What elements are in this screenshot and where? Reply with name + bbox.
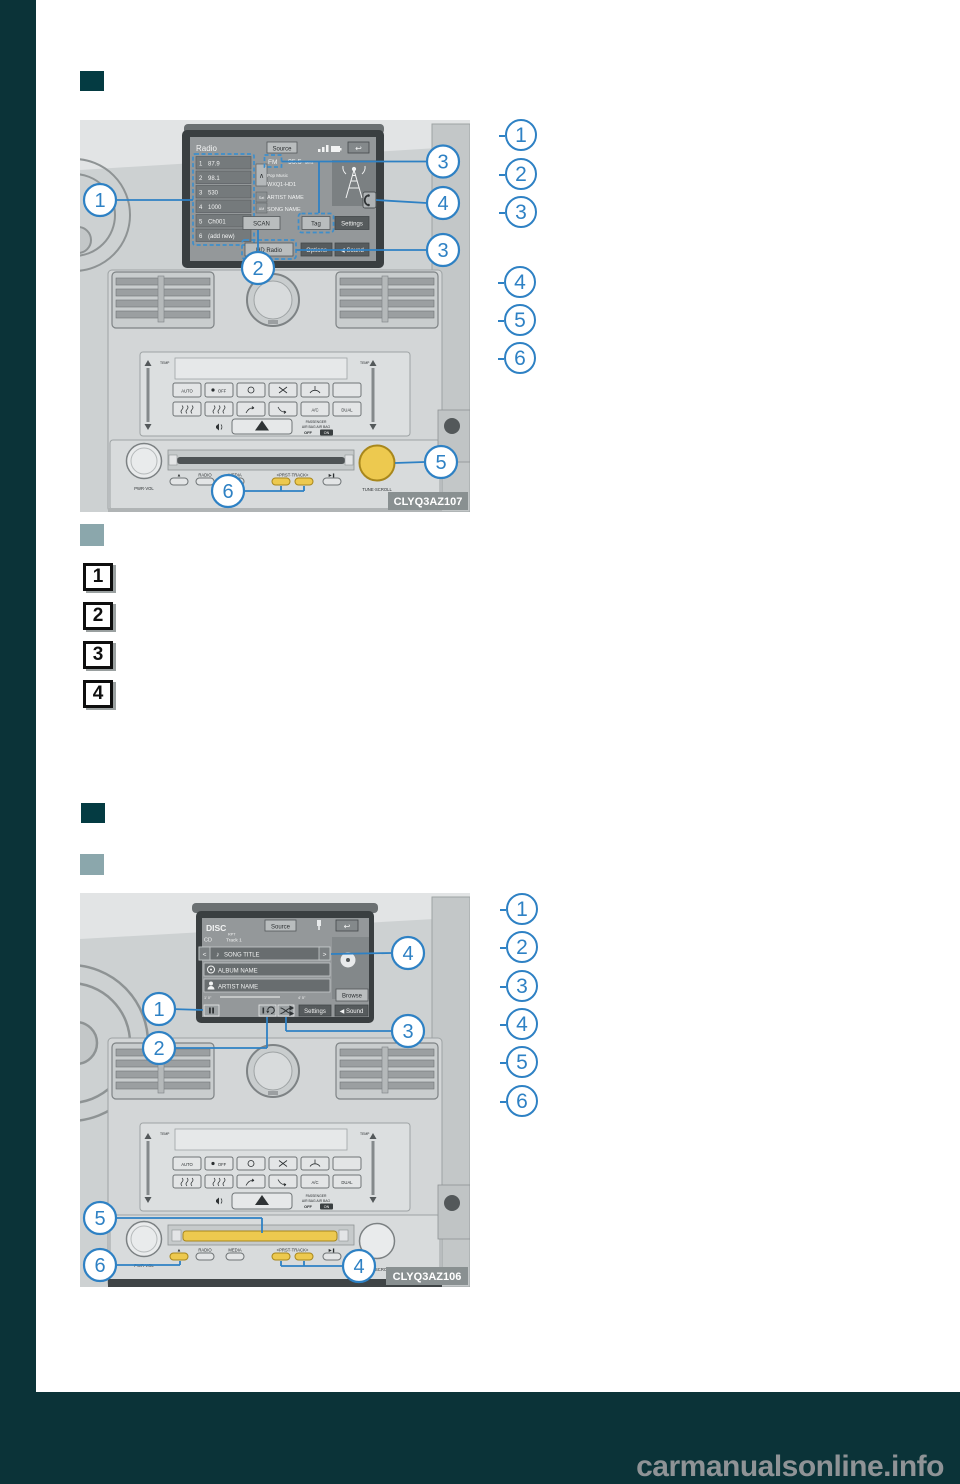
- cd-slot-highlighted: [168, 1225, 354, 1245]
- svg-text:2: 2: [153, 1038, 164, 1060]
- legend-number: 4: [516, 1014, 528, 1035]
- side-knob: [438, 1185, 470, 1239]
- time-elapsed: 1' 0": [204, 996, 212, 1000]
- power-volume-knob: [127, 444, 162, 479]
- step-number-box-3: 3: [83, 641, 113, 669]
- callout-4a: 4: [392, 937, 424, 969]
- legend-number: 3: [516, 976, 528, 997]
- settings-label: Settings: [304, 1009, 326, 1015]
- callout-6: 6: [212, 475, 244, 507]
- dual-button-label: DUAL: [341, 408, 353, 413]
- svg-text:OFF: OFF: [304, 430, 313, 435]
- media-button: [226, 1253, 244, 1260]
- watermark-text: carmanualsonline.info: [636, 1450, 944, 1484]
- eject-symbol: ▲: [177, 473, 181, 478]
- scroll-up-icon: ∧: [259, 173, 264, 180]
- dual-button-label: DUAL: [341, 1180, 353, 1185]
- right-air-vent: [336, 272, 438, 328]
- legend-number: 3: [515, 202, 527, 223]
- section-marker-1: [80, 71, 104, 91]
- callout-4: 4: [427, 187, 459, 219]
- legend-number: 6: [516, 1091, 528, 1112]
- legend-item-1: 1: [505, 119, 537, 151]
- eject-symbol: ▲: [177, 1248, 181, 1253]
- svg-text:OFF: OFF: [304, 1204, 313, 1209]
- svg-text:TEMP: TEMP: [160, 361, 170, 365]
- svg-text:3: 3: [402, 1021, 413, 1043]
- callout-1: 1: [143, 993, 175, 1025]
- legend-item-5: 5: [504, 304, 536, 336]
- legend-item-3: 3: [506, 970, 538, 1002]
- callout-3b: 3: [427, 234, 459, 266]
- play-button: [323, 1253, 341, 1260]
- center-dial: [247, 1045, 299, 1097]
- preset-value: 530: [208, 191, 219, 197]
- svg-text:AIR BAG AIR BAG: AIR BAG AIR BAG: [302, 1199, 331, 1203]
- climate-display: [175, 358, 347, 379]
- legend-item-4: 4: [506, 1008, 538, 1040]
- legend-item-2: 2: [506, 931, 538, 963]
- radio-button: [196, 478, 214, 485]
- callout-3: 3: [392, 1015, 424, 1047]
- page-background: Radio Source ↩ 1 87.9 2 98.1 3 530 4 100…: [0, 0, 960, 1484]
- svg-text:ON: ON: [324, 1205, 330, 1209]
- browse-label: Browse: [342, 994, 363, 1000]
- repeat-button: [259, 1005, 276, 1016]
- step-number: 2: [93, 605, 104, 627]
- svg-text:4: 4: [353, 1256, 364, 1278]
- eject-button-highlighted: [170, 1253, 188, 1260]
- legend-number: 1: [516, 899, 528, 920]
- pause-button: [204, 1005, 219, 1016]
- off-button-label: OFF: [218, 1162, 227, 1167]
- power-volume-label: PWR·VOL: [134, 486, 154, 491]
- play-pause-label: ▶❚: [329, 473, 336, 478]
- legend-number: 4: [514, 272, 526, 293]
- options-label: Options: [306, 248, 327, 254]
- preset-value: Ch001: [208, 220, 226, 226]
- legend-number: 5: [514, 310, 526, 331]
- legend-item-6: 6: [506, 1085, 538, 1117]
- section-marker-4: [80, 854, 104, 875]
- svg-text:TEMP: TEMP: [360, 1132, 370, 1136]
- svg-text:2: 2: [252, 258, 263, 280]
- left-air-vent: [112, 272, 214, 328]
- right-air-vent: [336, 1043, 438, 1099]
- step-number: 1: [93, 566, 104, 588]
- legend-item-6: 6: [504, 342, 536, 374]
- svg-text:PASSENGER: PASSENGER: [306, 420, 327, 424]
- svg-text:PASSENGER: PASSENGER: [306, 1194, 327, 1198]
- auto-button-label: AUTO: [181, 389, 193, 394]
- tag-label: Tag: [311, 222, 321, 228]
- prst-track-back-button: [272, 478, 290, 485]
- section-marker-2: [80, 524, 104, 546]
- section-marker-3: [81, 803, 105, 823]
- play-button: [323, 478, 341, 485]
- step-number: 3: [93, 644, 104, 666]
- step-number-box-1: 1: [83, 563, 113, 591]
- svg-text:1: 1: [153, 999, 164, 1021]
- svg-text:5: 5: [435, 452, 446, 474]
- step-number-box-2: 2: [83, 602, 113, 630]
- callout-1: 1: [84, 184, 116, 216]
- step-number-box-4: 4: [83, 680, 113, 708]
- artist-name: ARTIST NAME: [218, 985, 258, 991]
- screen-title: DISC: [206, 923, 226, 933]
- preset-value: 98.1: [208, 176, 220, 182]
- media-button-label: MEDIA: [228, 1248, 241, 1253]
- figure-code: CLYQ3AZ107: [394, 496, 463, 508]
- tune-scroll-label: TUNE·SCROLL: [362, 487, 392, 492]
- radio-button-label: RADIO: [198, 1248, 212, 1253]
- prst-track-label: <PRST·TRACK>: [277, 473, 309, 478]
- svg-text:5: 5: [94, 1208, 105, 1230]
- off-button-label: OFF: [218, 389, 227, 394]
- disc-type-label: CD: [204, 938, 212, 944]
- sound-label: ◀ Sound: [340, 248, 364, 254]
- radio-button-label: RADIO: [198, 473, 212, 478]
- prst-track-back-button: [272, 1253, 290, 1260]
- svg-text:4: 4: [437, 193, 448, 215]
- scan-label: SCAN: [253, 222, 270, 228]
- figure-code: CLYQ3AZ106: [393, 1271, 462, 1283]
- legend-item-3: 3: [505, 196, 537, 228]
- legend-item-4: 4: [504, 266, 536, 298]
- climate-display: [175, 1129, 347, 1150]
- preset-value: 1000: [208, 205, 222, 211]
- svg-text:ON: ON: [324, 431, 330, 435]
- legend-item-1: 1: [506, 893, 538, 925]
- artist-name: ARTIST NAME: [267, 195, 304, 201]
- legend-number: 2: [515, 164, 527, 185]
- album-name: ALBUM NAME: [218, 969, 258, 975]
- figure-radio-operation: Radio Source ↩ 1 87.9 2 98.1 3 530 4 100…: [80, 120, 470, 512]
- song-title: SONG TITLE: [224, 953, 260, 959]
- callout-5: 5: [425, 446, 457, 478]
- tab-am-label: AM: [259, 207, 264, 211]
- song-name: SONG NAME: [267, 207, 301, 213]
- repeat-indicator: RPT: [228, 933, 236, 937]
- source-label: Source: [271, 925, 291, 931]
- auto-button-label: AUTO: [181, 1162, 193, 1167]
- callout-3a: 3: [427, 146, 459, 178]
- callout-2: 2: [143, 1032, 175, 1064]
- svg-text:3: 3: [437, 240, 448, 262]
- tune-scroll-knob: [360, 446, 395, 481]
- preset-value: (add new): [208, 234, 235, 240]
- settings-label: Settings: [341, 222, 363, 228]
- legend-item-5: 5: [506, 1046, 538, 1078]
- callout-6: 6: [84, 1249, 116, 1281]
- svg-text:TEMP: TEMP: [360, 361, 370, 365]
- preset-value: 87.9: [208, 162, 220, 168]
- genre-label: Pop Music: [267, 173, 289, 178]
- station-name: WXQ1-HD1: [267, 182, 296, 188]
- track-indicator: Track 1: [226, 938, 242, 944]
- prev-icon: <: [203, 952, 207, 959]
- callout-2: 2: [242, 252, 274, 284]
- play-pause-label: ▶❚: [329, 1248, 336, 1253]
- callout-5: 5: [84, 1202, 116, 1234]
- step-number: 4: [93, 683, 104, 705]
- time-total: 4' 5": [298, 996, 306, 1000]
- prst-track-fwd-button: [295, 1253, 313, 1260]
- prst-track-fwd-button: [295, 478, 313, 485]
- svg-text:AIR BAG AIR BAG: AIR BAG AIR BAG: [302, 425, 331, 429]
- callout-4b: 4: [343, 1250, 375, 1282]
- radio-button: [196, 1253, 214, 1260]
- svg-text:1: 1: [94, 190, 105, 212]
- sound-label: ◀ Sound: [340, 1009, 364, 1015]
- screen-title: Radio: [196, 144, 217, 153]
- back-icon: ↩: [355, 144, 362, 153]
- next-icon: >: [323, 952, 327, 959]
- eject-button: [170, 478, 188, 485]
- back-icon: ↩: [344, 922, 351, 931]
- ac-button-label: A/C: [312, 408, 319, 413]
- svg-text:3: 3: [437, 152, 448, 174]
- ac-button-label: A/C: [312, 1180, 319, 1185]
- legend-number: 5: [516, 1052, 528, 1073]
- band-label: FM: [268, 159, 277, 166]
- svg-text:6: 6: [94, 1255, 105, 1277]
- legend-number: 1: [515, 125, 527, 146]
- note-icon: ♪: [216, 952, 220, 959]
- prst-track-label: <PRST·TRACK>: [277, 1248, 309, 1253]
- power-volume-knob: [127, 1222, 162, 1257]
- legend-number: 6: [514, 348, 526, 369]
- source-label: Source: [272, 147, 292, 153]
- svg-text:4: 4: [402, 943, 413, 965]
- frequency-value: 95.5: [288, 159, 302, 166]
- legend-number: 2: [516, 937, 528, 958]
- svg-text:6: 6: [222, 481, 233, 503]
- svg-text:TEMP: TEMP: [160, 1132, 170, 1136]
- tab-sat-label: Sat: [259, 196, 264, 200]
- cd-slot: [168, 450, 354, 470]
- legend-item-2: 2: [505, 158, 537, 190]
- figure-disc-operation: DISC Source ↩ CD RPT Track 1 < ♪ SONG TI…: [80, 893, 470, 1287]
